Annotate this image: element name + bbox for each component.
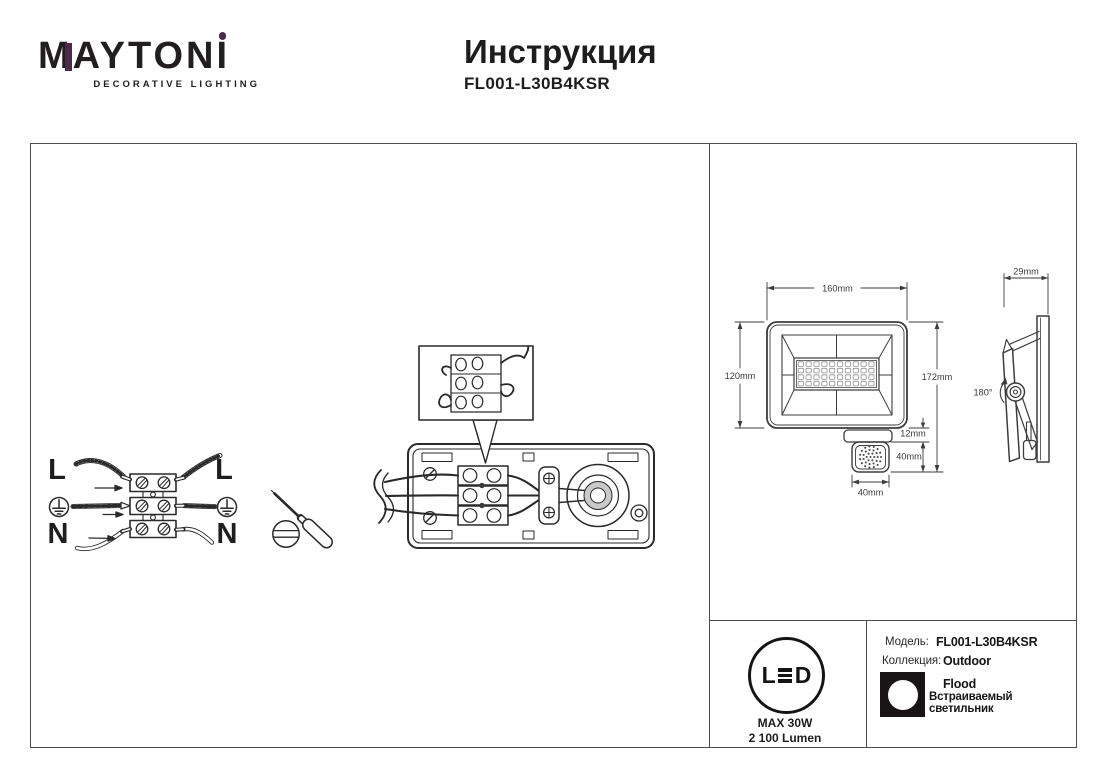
cable-grommet (567, 465, 629, 527)
mounting-bracket (844, 430, 892, 442)
floodlight-side-view (1000, 316, 1049, 462)
rotation-arc (1000, 383, 1004, 403)
wire-live-right (176, 456, 220, 480)
spec-strip: L D MAX 30W 2 100 Lumen Модель: FL001-L3… (710, 620, 1076, 747)
collection-label: Коллекция: (882, 655, 941, 667)
logo-tagline: DECORATIVE LIGHTING (38, 79, 260, 90)
dim-rotation: 180° (973, 388, 992, 398)
collection-value: Outdoor (943, 654, 991, 668)
logo-accent-dot-icon (219, 32, 227, 40)
logo-letter-i: I (216, 36, 230, 76)
page-title: Инструкция (464, 34, 657, 69)
title-block: Инструкция FL001-L30B4KSR (464, 34, 657, 94)
dim-body-height: 120mm (725, 371, 756, 381)
flood-type-icon (880, 672, 925, 717)
dim-body-width: 160mm (822, 283, 853, 293)
led-letter-e-icon (778, 667, 792, 684)
dimension-drawing: 160mm 120mm 172mm 12mm (710, 144, 1074, 619)
terminal-inset (419, 346, 533, 463)
instruction-sheet: MAYTONI DECORATIVE LIGHTING Инструкция F… (0, 0, 1103, 777)
box-terminal-block (458, 466, 508, 525)
luminous-flux: 2 100 Lumen (710, 731, 860, 745)
dimensions-panel: 160mm 120mm 172mm 12mm (710, 143, 1077, 748)
earth-icon (50, 498, 69, 517)
dim-overall-height: 172mm (922, 372, 953, 382)
dim-sensor-height: 40mm (896, 452, 922, 462)
max-power: MAX 30W (710, 716, 860, 730)
wire-neutral-right (176, 529, 212, 543)
cable-clamp (539, 467, 559, 524)
logo-wordmark: MAYTONI (38, 36, 230, 76)
logo-letters-mid: AYTON (73, 35, 217, 77)
incoming-cable (374, 470, 458, 523)
wire-earth-right (176, 506, 215, 507)
dim-sensor-width: 40mm (858, 488, 884, 498)
wiring-diagram: L L N N (48, 454, 238, 550)
model-number: FL001-L30B4KSR (464, 74, 657, 94)
wire-live-left (76, 460, 130, 479)
led-badge-cell: L D MAX 30W 2 100 Lumen (710, 621, 867, 747)
dim-bracket-gap: 12mm (900, 429, 926, 439)
model-label: Модель: (885, 636, 929, 648)
earth-icon (218, 498, 237, 517)
led-array (798, 362, 874, 386)
product-info-cell: Модель: FL001-L30B4KSR Коллекция: Outdoo… (867, 621, 1076, 747)
junction-box (374, 444, 654, 548)
screwdriver-icon (272, 491, 327, 548)
installation-diagram: L L N N (31, 144, 708, 746)
maytoni-logo: MAYTONI DECORATIVE LIGHTING (38, 36, 260, 90)
wire-earth-left (73, 502, 130, 509)
motion-sensor (852, 442, 889, 472)
led-letter-d: D (795, 664, 812, 687)
logo-accent-bar-icon (65, 43, 72, 71)
type-en: Flood (943, 677, 976, 691)
installation-panel: L L N N (30, 143, 710, 748)
led-badge-icon: L D (748, 637, 825, 714)
label-neutral-left: N (48, 518, 69, 550)
led-letter-l: L (762, 664, 776, 687)
label-neutral-right: N (217, 518, 238, 550)
type-ru: Встраиваемый светильник (929, 691, 1076, 715)
model-value: FL001-L30B4KSR (936, 635, 1037, 649)
terminal-blocks (130, 474, 176, 538)
label-live-left: L (48, 454, 66, 486)
dim-depth: 29mm (1013, 267, 1039, 277)
floodlight-front-view (767, 322, 907, 472)
